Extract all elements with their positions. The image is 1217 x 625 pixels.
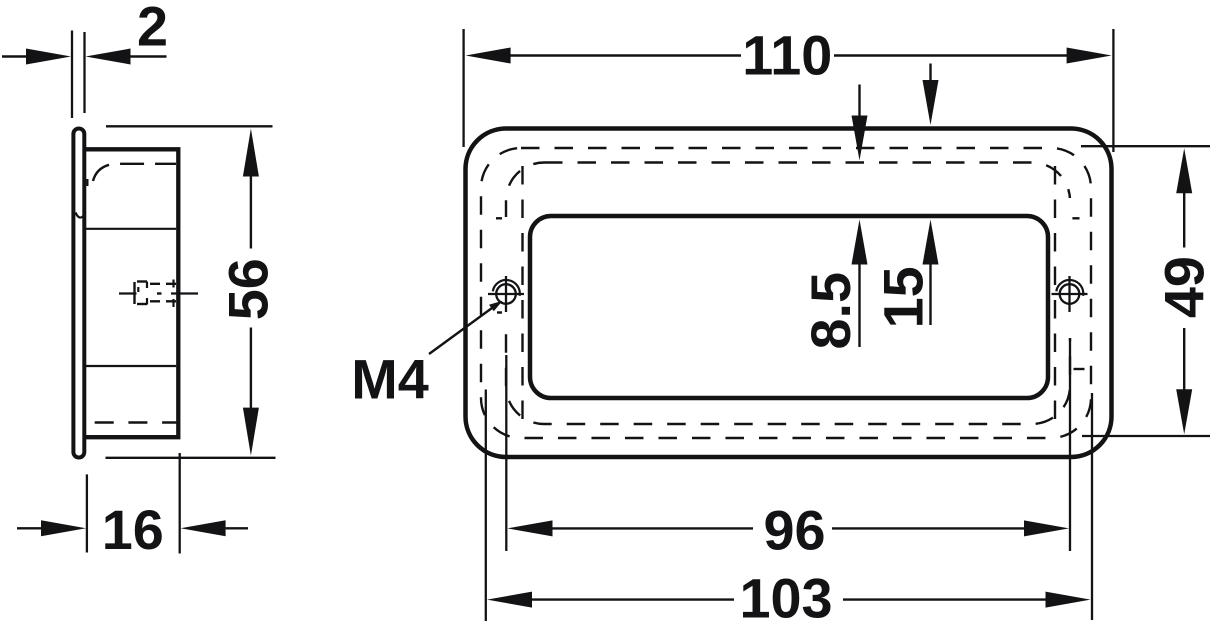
svg-text:15: 15 — [871, 266, 934, 328]
svg-text:110: 110 — [742, 24, 832, 87]
svg-text:2: 2 — [137, 0, 168, 58]
svg-text:103: 103 — [739, 567, 832, 625]
svg-text:16: 16 — [102, 498, 164, 561]
svg-text:8.5: 8.5 — [799, 272, 862, 350]
svg-text:96: 96 — [763, 499, 825, 562]
svg-text:49: 49 — [1153, 256, 1216, 318]
svg-text:56: 56 — [217, 258, 280, 320]
svg-text:M4: M4 — [351, 348, 429, 411]
